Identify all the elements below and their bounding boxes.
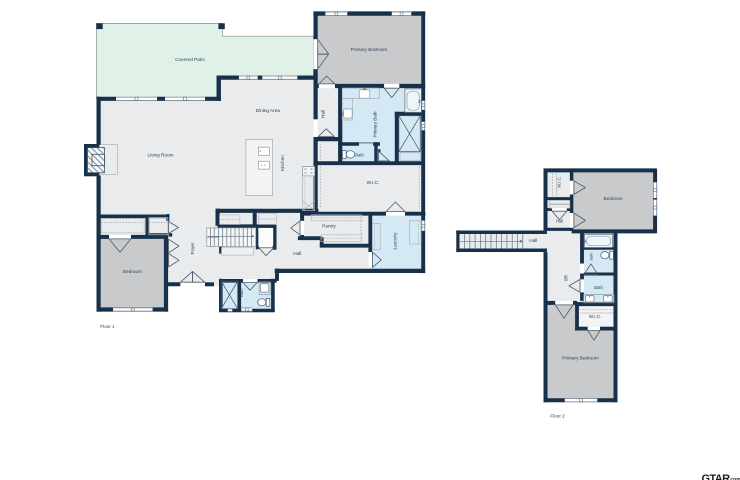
svg-text:Hall: Hall — [529, 238, 537, 243]
svg-text:Kitchen: Kitchen — [280, 155, 285, 171]
svg-text:Bedroom: Bedroom — [123, 269, 142, 274]
svg-text:Dining Area: Dining Area — [256, 108, 281, 113]
svg-text:Bath: Bath — [594, 285, 603, 290]
svg-text:Bath: Bath — [355, 153, 364, 158]
svg-text:Hall: Hall — [556, 218, 563, 223]
svg-text:Primary Bedroom: Primary Bedroom — [351, 47, 388, 52]
svg-text:Laundry: Laundry — [392, 232, 397, 250]
svg-text:Foyer: Foyer — [190, 242, 195, 254]
svg-text:Pantry: Pantry — [322, 224, 336, 229]
svg-text:BR: BR — [563, 275, 568, 281]
svg-text:Bedroom: Bedroom — [603, 196, 622, 201]
svg-text:Floor 2: Floor 2 — [550, 413, 565, 418]
svg-text:Floor 1: Floor 1 — [100, 324, 115, 329]
svg-text:Primary Bedroom: Primary Bedroom — [562, 356, 599, 361]
svg-text:W.I.C.: W.I.C. — [367, 180, 380, 185]
svg-text:W.I.C.: W.I.C. — [557, 176, 562, 187]
svg-text:Bath: Bath — [589, 252, 594, 260]
svg-text:Covered Patio: Covered Patio — [175, 57, 205, 62]
svg-text:Hall: Hall — [293, 251, 301, 256]
svg-text:Living Room: Living Room — [147, 153, 173, 158]
svg-text:Hall: Hall — [321, 110, 326, 118]
svg-text:Bath: Bath — [239, 288, 244, 297]
svg-text:Primary Bath: Primary Bath — [373, 111, 378, 138]
svg-text:W.I.C.: W.I.C. — [589, 314, 602, 319]
svg-text:GTAR: GTAR — [702, 473, 731, 480]
